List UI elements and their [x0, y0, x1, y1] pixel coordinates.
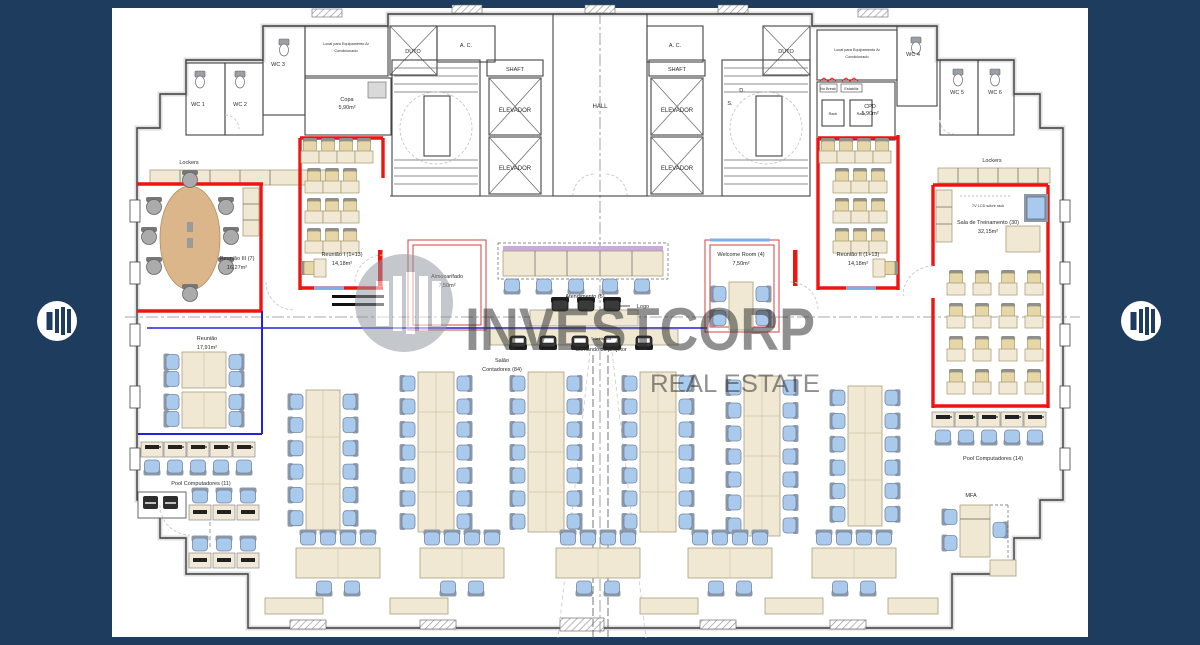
- reuniao3-label: Reunião III (7): [220, 256, 255, 262]
- shaft-left-label: SHAFT: [506, 67, 525, 73]
- wc5-label: WC 5: [950, 90, 964, 96]
- reuniao3-area: 16,27m²: [227, 265, 247, 271]
- cpd-label: CPD: [864, 104, 876, 110]
- estabiliz-label: Estabiliz.: [844, 87, 859, 91]
- mfa-label: MFA: [965, 493, 977, 499]
- right-brand-medallion: [1121, 301, 1161, 341]
- wc1-label: WC 1: [191, 102, 205, 108]
- local-ac-left-label-1: Local para Equipamento Ar: [323, 42, 370, 46]
- welcome-label: Welcome Room (4): [717, 252, 764, 258]
- hall-label: HALL: [592, 104, 608, 110]
- tv-label: TV LCD sobre rack: [972, 204, 1004, 208]
- floor-plan-canvas: HALL SHAFT SHAFT ELEVADOR ELEVADOR ELEVA…: [0, 0, 1200, 645]
- floor-plan-page: HALL SHAFT SHAFT ELEVADOR ELEVADOR ELEVA…: [0, 0, 1200, 645]
- reuniao2-area: 14,18m²: [848, 261, 868, 267]
- watermark-subtitle: REAL ESTATE: [650, 370, 820, 398]
- wc3-label: WC 3: [271, 62, 285, 68]
- pool11-label: Pool Computadores (11): [171, 481, 231, 487]
- reuniao-area: 17,91m²: [197, 345, 217, 351]
- reuniao1-area: 14,18m²: [332, 261, 352, 267]
- welcome-area: 7,50m²: [732, 261, 749, 267]
- treinamento-label: Sala de Treinamento (30): [957, 220, 1019, 226]
- shaft-right-label: SHAFT: [668, 67, 687, 73]
- reuniao-label: Reunião: [197, 336, 218, 342]
- lockers-left-label: Lockers: [179, 160, 199, 166]
- stair-down-label: D.: [739, 88, 745, 94]
- reuniao2-label: Reunião II (1+13): [837, 252, 880, 258]
- duto-left-label: DUTO: [405, 49, 421, 55]
- local-ac-right-label-2: Condicionado: [845, 55, 868, 59]
- rack-label: Rack: [829, 112, 838, 116]
- watermark-title: INVESTCORP: [465, 296, 815, 363]
- wc6-label: WC 6: [988, 90, 1002, 96]
- rack-label: Rack: [857, 112, 866, 116]
- salao-area: Contadores (84): [482, 367, 522, 373]
- wc2-label: WC 2: [233, 102, 247, 108]
- elevator-label: ELEVADOR: [499, 166, 532, 172]
- copa-label: Copa: [340, 97, 354, 103]
- ac-right-label: A. C.: [669, 43, 682, 49]
- local-ac-left-label-2: Condicionado: [334, 49, 357, 53]
- left-brand-medallion: [37, 301, 77, 341]
- ac-left-label: A. C.: [460, 43, 473, 49]
- lockers-right-label: Lockers: [982, 158, 1002, 164]
- copa-area: 5,90m²: [338, 105, 355, 111]
- local-ac-right-label-1: Local para Equipamento Ar: [834, 48, 881, 52]
- nobreak-label: No Break: [820, 87, 836, 91]
- wc4-label: WC 4: [906, 52, 920, 58]
- stair-up-label: S.: [727, 101, 733, 107]
- pool14-label: Pool Computadores (14): [963, 456, 1023, 462]
- reuniao1-label: Reunião I (1+13): [321, 252, 362, 258]
- duto-right-label: DUTO: [778, 49, 794, 55]
- lockers-right: [938, 168, 1050, 183]
- watermark-logo-icon: [355, 254, 453, 352]
- elevator-label: ELEVADOR: [661, 166, 694, 172]
- elevator-label: ELEVADOR: [499, 108, 532, 114]
- treinamento-area: 32,15m²: [978, 229, 998, 235]
- elevator-label: ELEVADOR: [661, 108, 694, 114]
